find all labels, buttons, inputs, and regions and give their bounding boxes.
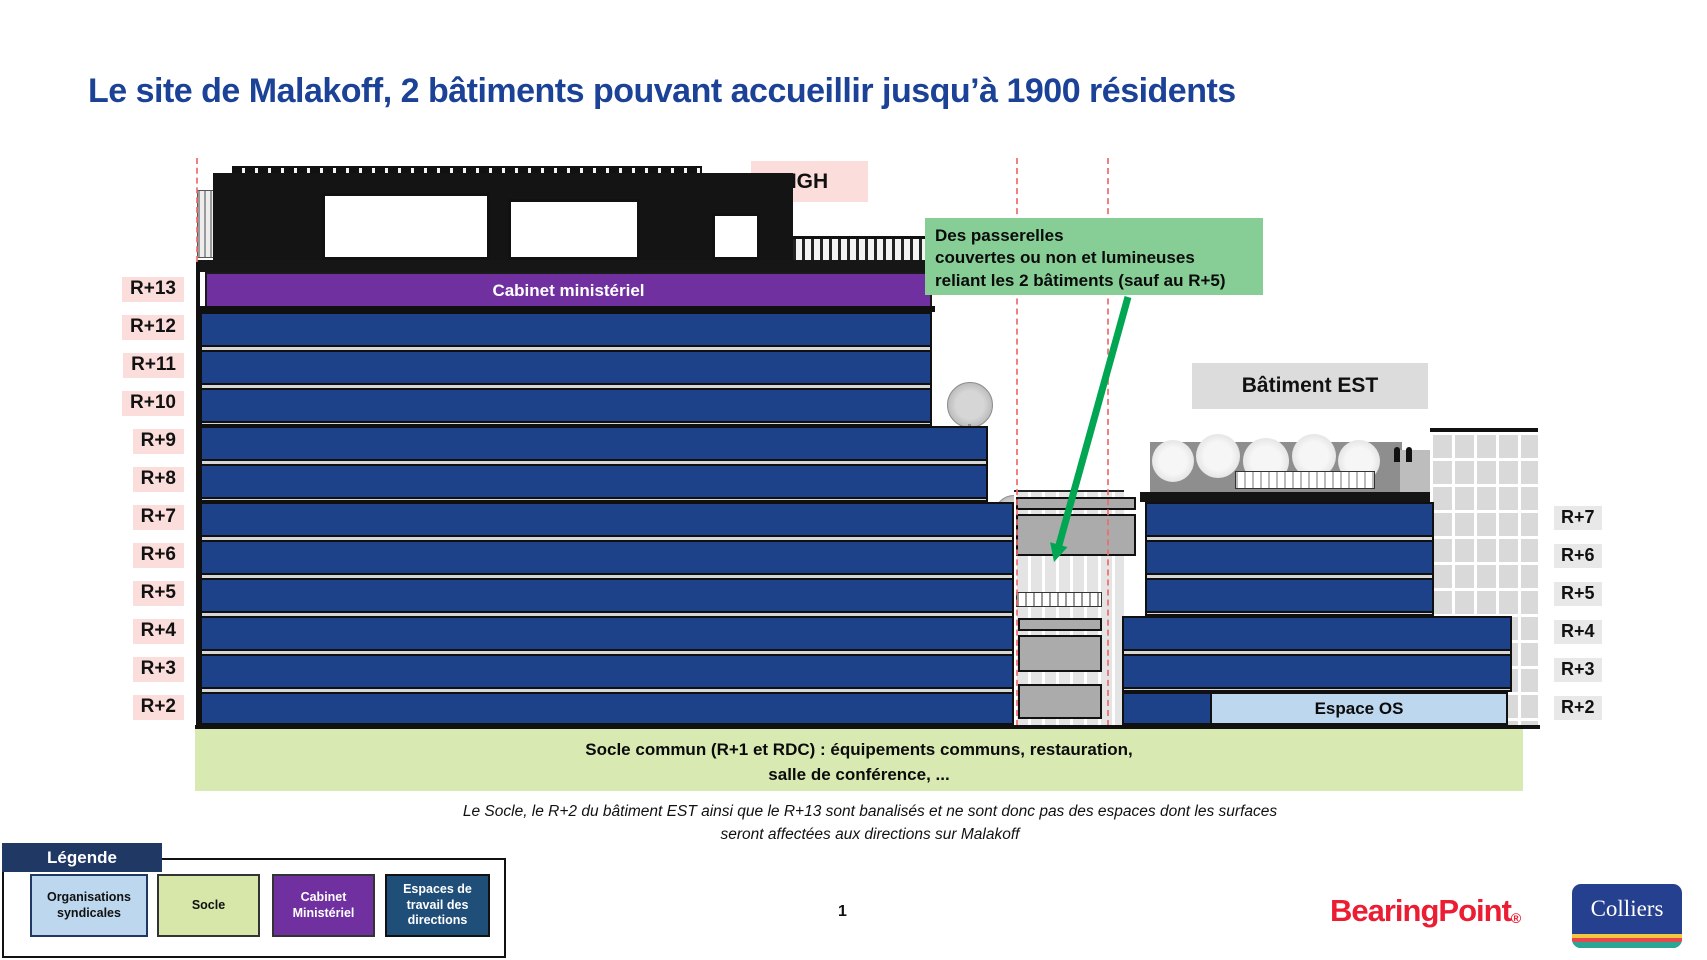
roof-room (712, 213, 760, 260)
colliers-stripe-teal (1572, 942, 1682, 948)
socle-line: salle de conférence, ... (195, 763, 1523, 788)
roof-mass (213, 173, 793, 262)
floor-label-left: R+8 (96, 467, 184, 492)
floor-label-left: R+4 (96, 619, 184, 644)
igh-floors-upper (200, 312, 932, 426)
floor-label-left: R+13 (96, 277, 184, 302)
roof-room (322, 193, 490, 260)
floor-label-left: R+3 (96, 657, 184, 682)
floor-label-right: R+5 (1554, 582, 1644, 606)
footnote-line: seront affectées aux directions sur Mala… (250, 823, 1490, 846)
passerelle (1018, 684, 1102, 719)
floor-label-left: R+10 (96, 391, 184, 416)
callout-line: reliant les 2 bâtiments (sauf au R+5) (935, 270, 1253, 292)
floor-label-right: R+6 (1554, 544, 1644, 568)
floor-label-left: R+6 (96, 543, 184, 568)
floor-label-right: R+7 (1554, 506, 1644, 530)
person-icon (1394, 447, 1400, 462)
roof-room (508, 199, 640, 260)
tree-icon (1152, 440, 1194, 482)
floor-label-right: R+3 (1554, 658, 1644, 682)
passerelle-hatch (1016, 592, 1102, 607)
legend-item-socle: Socle (157, 874, 260, 937)
colliers-logo: Colliers (1572, 884, 1682, 948)
est-roof-terrace (1235, 471, 1375, 489)
roof-railing (232, 166, 702, 173)
socle-line: Socle commun (R+1 et RDC) : équipements … (195, 738, 1523, 763)
igh-floors-mid (200, 426, 988, 502)
est-roof-slab (1140, 492, 1436, 502)
person-icon (1406, 447, 1412, 462)
floor-label-left: R+9 (96, 429, 184, 454)
floor-label-left: R+12 (96, 315, 184, 340)
floor-label-left: R+11 (96, 353, 184, 378)
legend-item-cabinet-ministeriel: Cabinet Ministériel (272, 874, 375, 937)
footnote-line: Le Socle, le R+2 du bâtiment EST ainsi q… (250, 800, 1490, 823)
tree-icon (947, 382, 993, 428)
floor-label-left: R+5 (96, 581, 184, 606)
tree-icon (1196, 434, 1240, 478)
igh-floors-lower (200, 502, 1014, 725)
cabinet-ministeriel-bar: Cabinet ministériel (205, 272, 932, 308)
passerelle (1018, 618, 1102, 631)
socle-commun-bar: Socle commun (R+1 et RDC) : équipements … (195, 729, 1523, 791)
floor-label-left: R+7 (96, 505, 184, 530)
floor-label-right: R+4 (1554, 620, 1644, 644)
footnote: Le Socle, le R+2 du bâtiment EST ainsi q… (250, 800, 1490, 847)
batiment-est-label: Bâtiment EST (1192, 363, 1428, 409)
espace-os-label: Espace OS (1315, 699, 1404, 718)
roof-slab (197, 260, 940, 272)
passerelles-callout: Des passerelles couvertes ou non et lumi… (925, 218, 1263, 295)
page-title: Le site de Malakoff, 2 bâtiments pouvant… (88, 72, 1236, 111)
cabinet-ministeriel-label: Cabinet ministériel (492, 281, 644, 300)
callout-line: Des passerelles (935, 225, 1253, 247)
registered-mark-icon: ® (1511, 910, 1520, 926)
colliers-wordmark: Colliers (1572, 884, 1682, 934)
est-floors-mid (1122, 616, 1512, 692)
limit-line (196, 158, 198, 262)
passerelle (1016, 514, 1136, 556)
est-floors-upper (1145, 502, 1434, 616)
espace-os-bar: Espace OS (1210, 692, 1508, 725)
bearingpoint-logo: BearingPoint® (1330, 893, 1520, 929)
passerelle (1016, 497, 1136, 510)
slide: Le site de Malakoff, 2 bâtiments pouvant… (0, 0, 1707, 960)
roof-balustrade (793, 236, 940, 262)
legend-item-espaces-directions: Espaces de travail des directions (385, 874, 490, 937)
est-r2-dark (1122, 692, 1214, 725)
legend-title: Légende (2, 843, 162, 872)
callout-line: couvertes ou non et lumineuses (935, 247, 1253, 269)
floor-label-right: R+2 (1554, 696, 1644, 720)
page-number: 1 (838, 903, 847, 921)
legend-item-organisations-syndicales: Organisations syndicales (30, 874, 148, 937)
floor-label-left: R+2 (96, 695, 184, 720)
passerelle (1018, 635, 1102, 672)
